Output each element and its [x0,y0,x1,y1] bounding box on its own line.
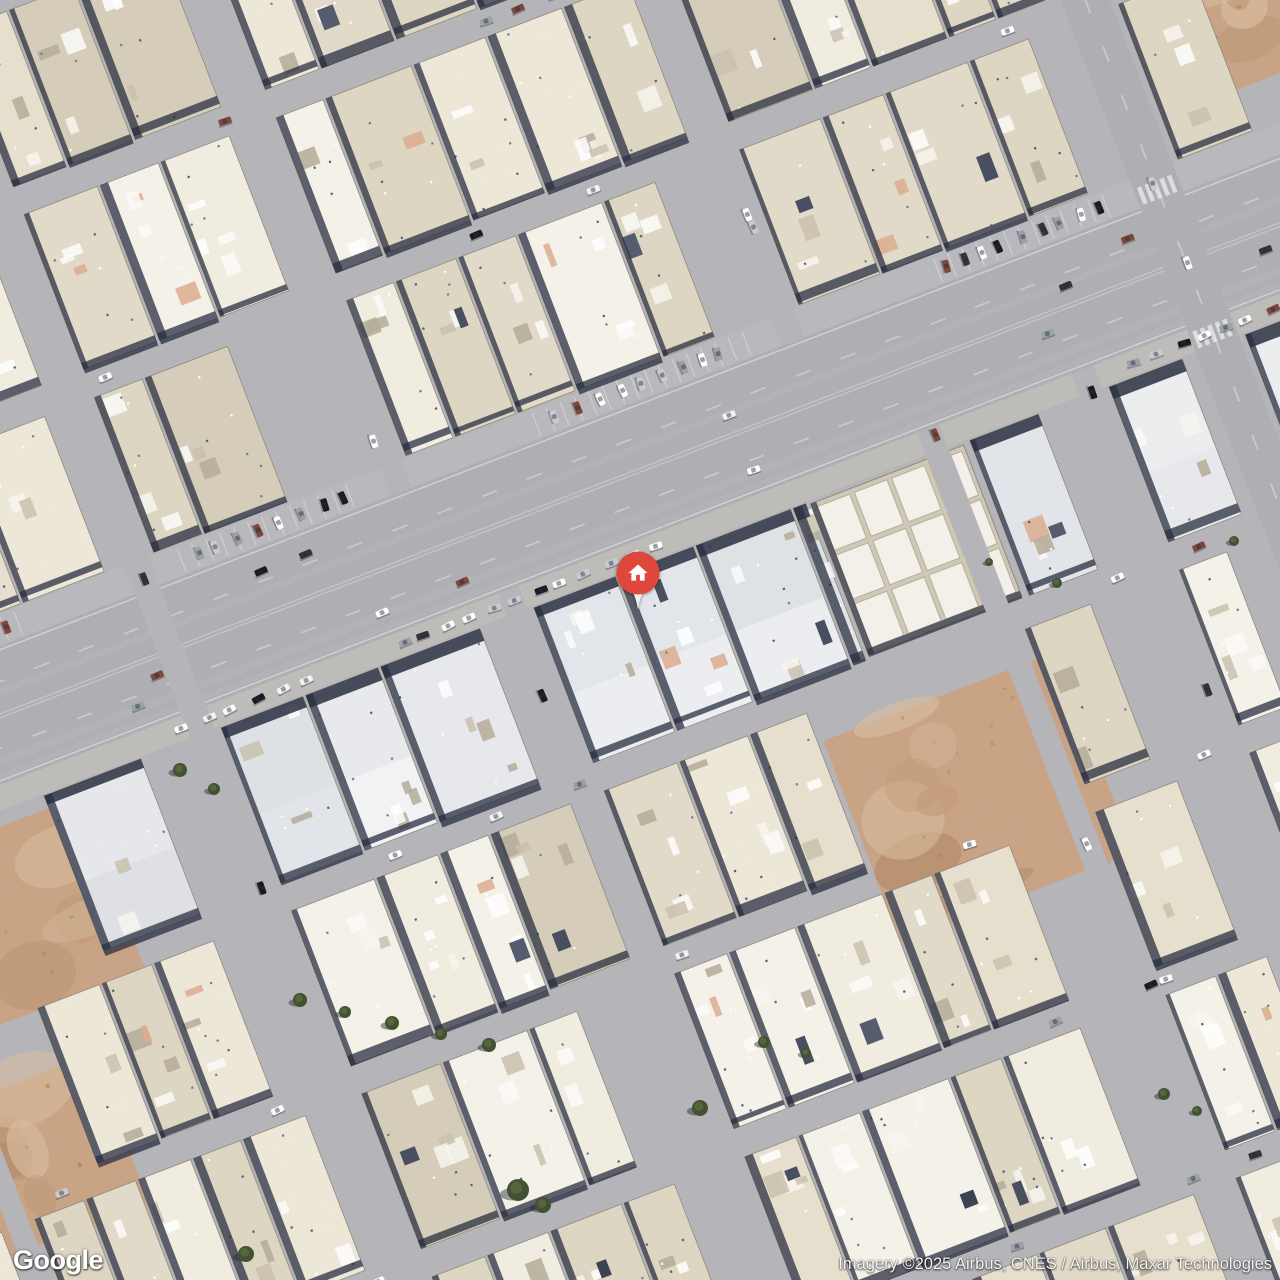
map-attribution: Imagery ©2025 Airbus, CNES / Airbus, Max… [838,1255,1272,1274]
map-viewport[interactable]: Google Imagery ©2025 Airbus, CNES / Airb… [0,0,1280,1280]
google-logo[interactable]: Google [13,1245,103,1276]
imagery-noise-overlay [0,0,1280,1280]
place-marker[interactable] [616,551,660,615]
satellite-imagery [0,0,1280,1280]
